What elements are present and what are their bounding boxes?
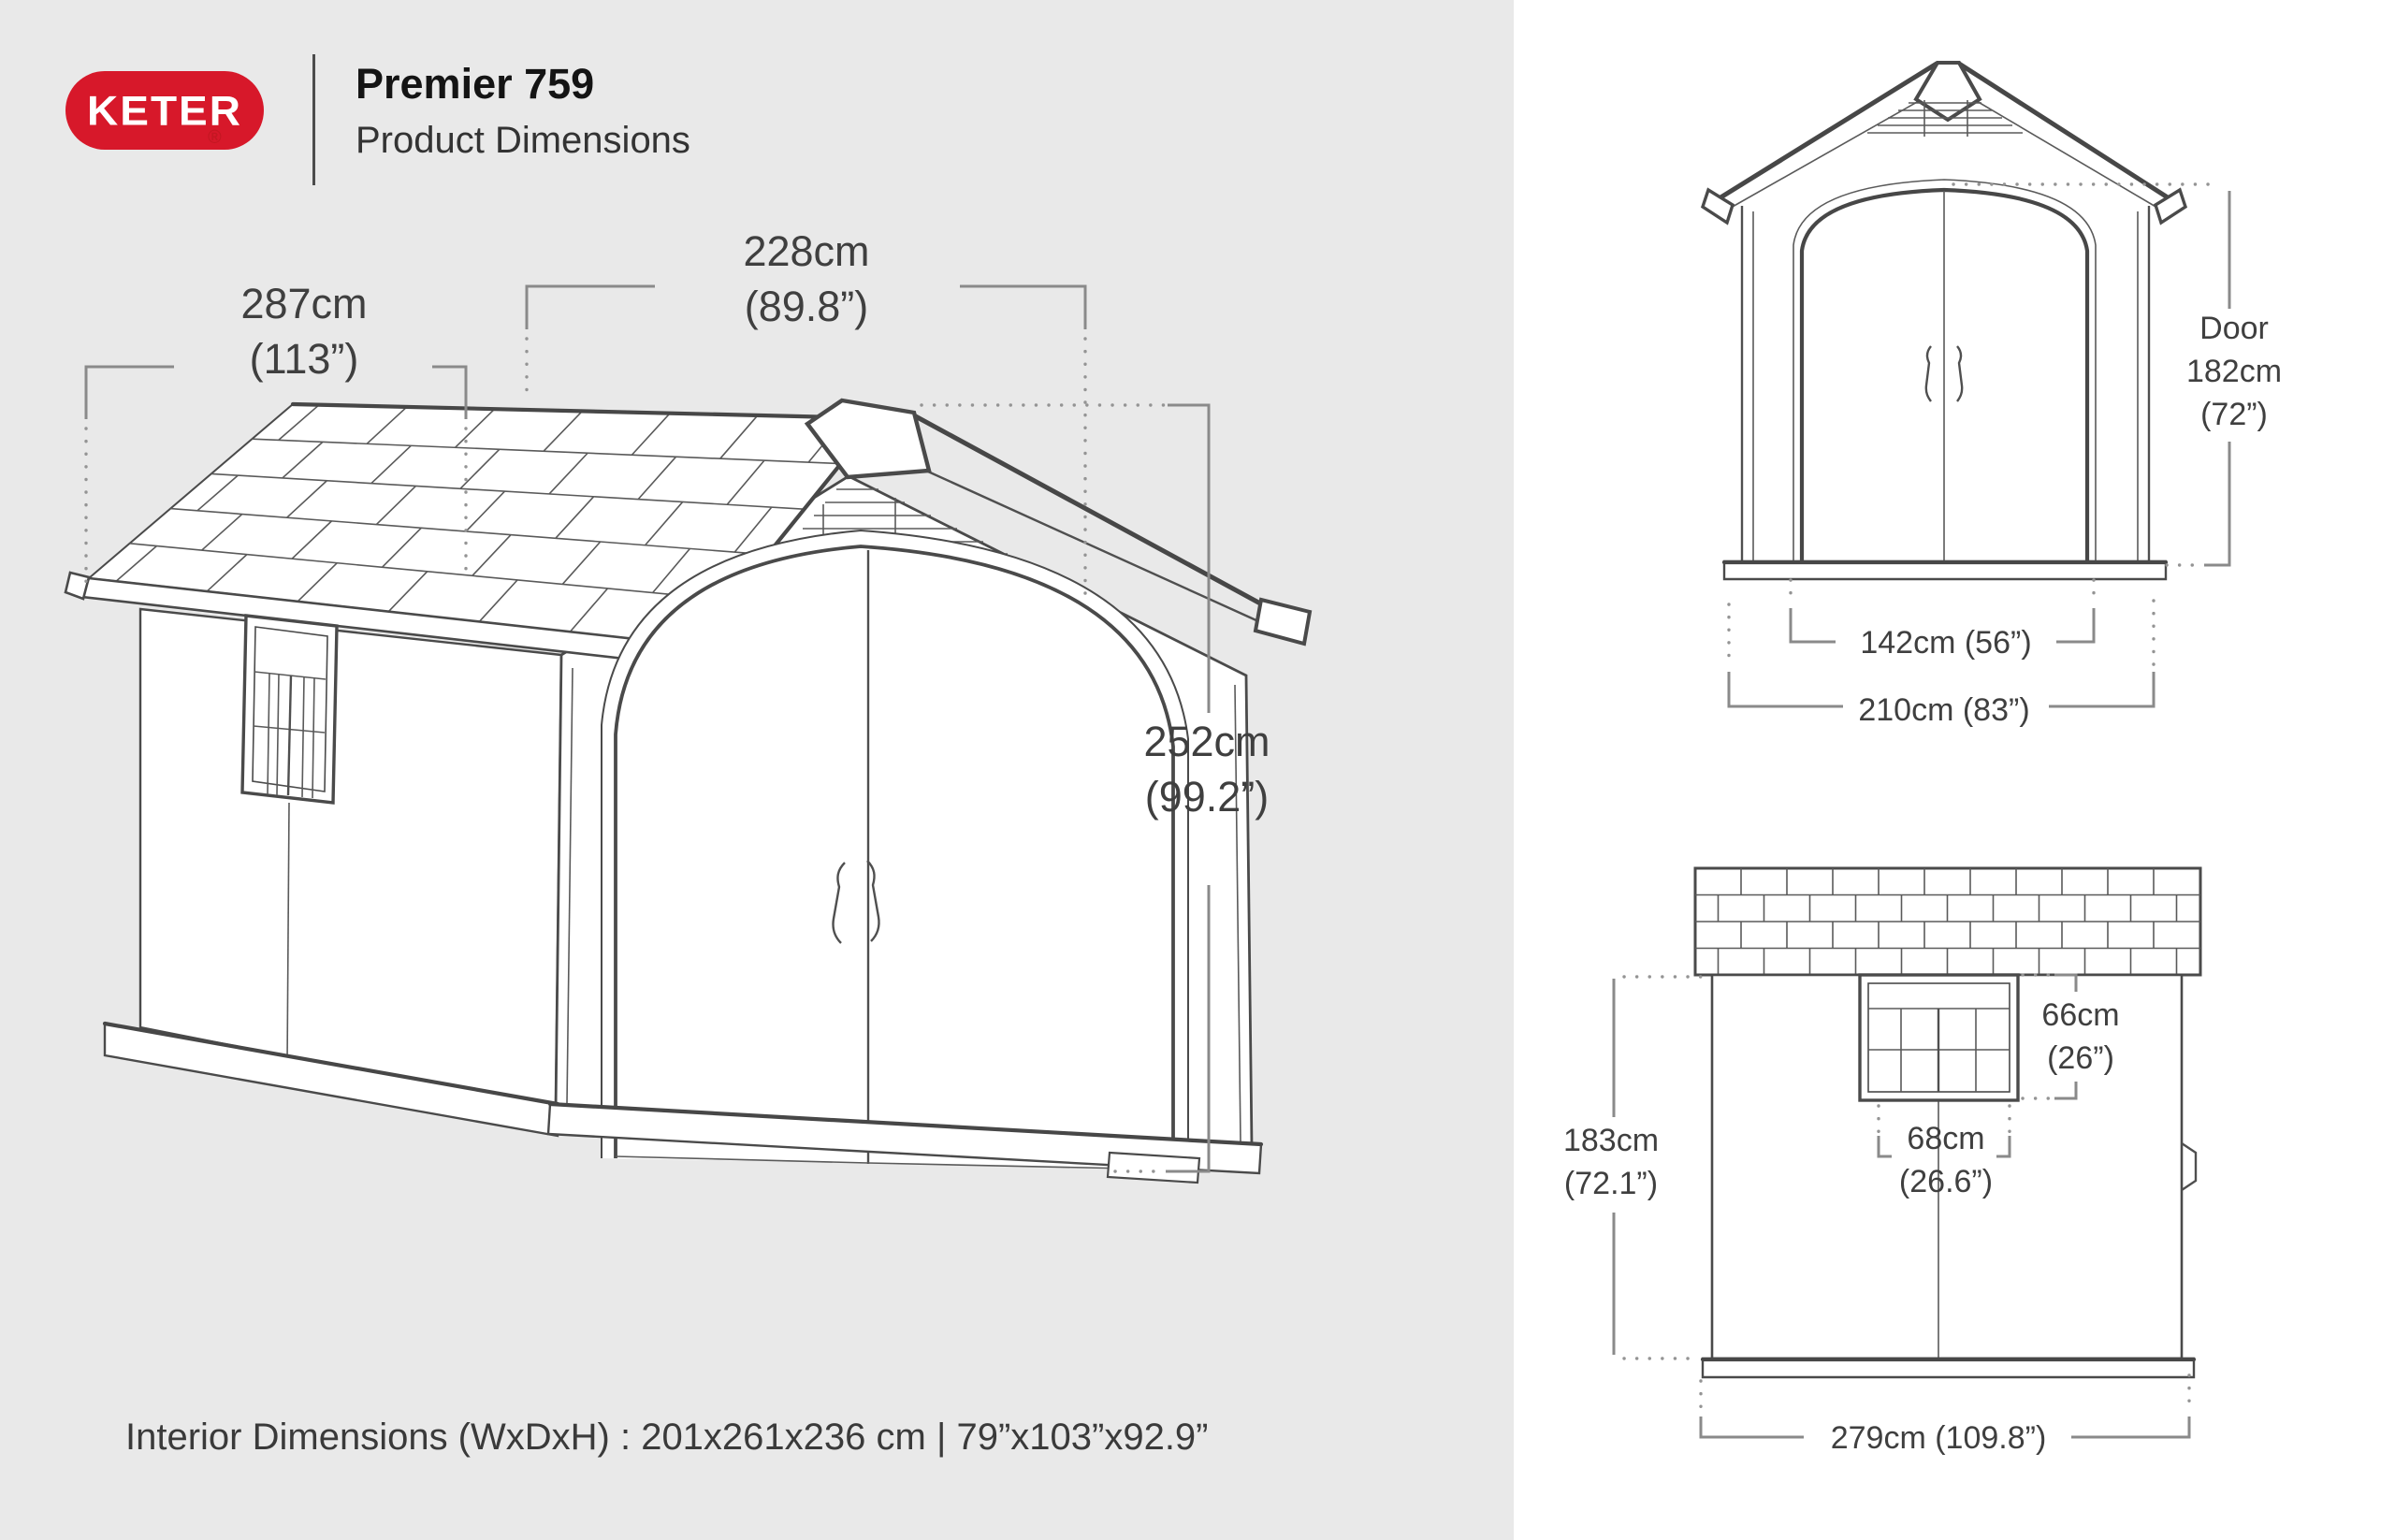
dim-label-side-total-width: 279cm (109.8”) xyxy=(1831,1417,2047,1460)
dim-label-width: 228cm (89.8”) xyxy=(743,225,869,334)
dim-label-height: 252cm (99.2”) xyxy=(1143,715,1270,824)
page-subtitle: Product Dimensions xyxy=(356,120,690,162)
interior-dimensions-text: Interior Dimensions (WxDxH) : 201x261x23… xyxy=(125,1417,1209,1459)
dim-label-front-outer-width: 210cm (83”) xyxy=(1858,689,2029,732)
side-door-handle xyxy=(2182,1143,2196,1190)
dim-label-door-height: Door 182cm (72”) xyxy=(2186,307,2282,437)
front-doors xyxy=(1793,180,2096,561)
page: .dim{stroke:#8a8a8a;stroke-width:3;fill:… xyxy=(0,0,2395,1540)
header-divider xyxy=(312,54,315,185)
front-elevation-drawing xyxy=(1703,63,2229,706)
front-door-handle-left xyxy=(1926,346,1931,401)
double-doors xyxy=(602,530,1188,1170)
side-window xyxy=(242,616,337,803)
dim-label-wall-height: 183cm (72.1”) xyxy=(1563,1119,1659,1205)
main-isometric-drawing xyxy=(65,286,1310,1183)
dim-label-front-inner-width: 142cm (56”) xyxy=(1860,621,2031,664)
side-elevation-window xyxy=(1860,975,2018,1100)
dim-label-window-width: 68cm (26.6”) xyxy=(1899,1117,1993,1203)
page-title: Premier 759 xyxy=(356,60,594,109)
front-door-handle-right xyxy=(1957,346,1962,401)
dim-label-depth: 287cm (113”) xyxy=(240,277,367,386)
keter-logo: KETER xyxy=(65,71,264,150)
registered-trademark-icon: ® xyxy=(208,127,222,149)
dim-label-window-height: 66cm (26”) xyxy=(2041,994,2119,1080)
